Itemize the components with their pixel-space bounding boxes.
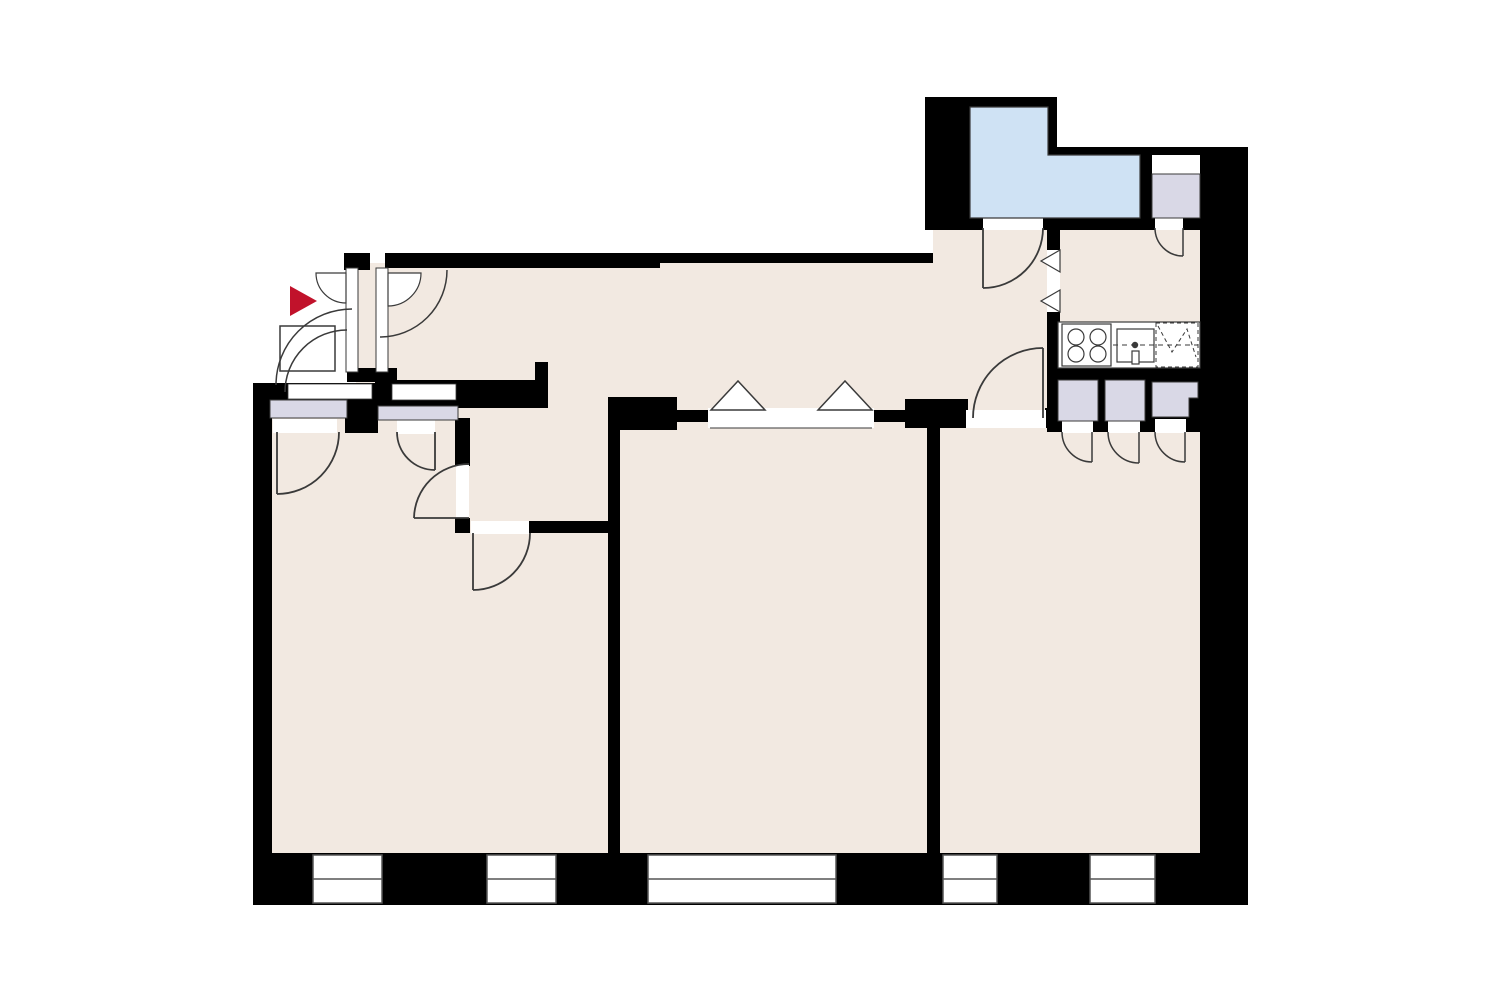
- shaft-room2-niche: [378, 406, 458, 420]
- wall-divider-r2-r3: [608, 430, 620, 853]
- opening-side-door: [456, 465, 469, 518]
- entrance-arrow: [290, 286, 317, 316]
- wall-left: [253, 383, 272, 905]
- shaft-closet-2: [1105, 380, 1145, 421]
- opening-room2-main: [471, 521, 529, 534]
- opening-room1-wall: [288, 384, 372, 399]
- wall-opening-right-thick: [905, 399, 968, 428]
- wall-opening-left-thick: [608, 397, 677, 430]
- wall-balcony-pillar: [925, 97, 970, 230]
- wall-opening-right-thin: [872, 410, 905, 422]
- room-fill-room1: [270, 383, 459, 853]
- wall-shaft-side: [1140, 155, 1152, 218]
- shaft-closet-1: [1058, 380, 1098, 421]
- floor-plan-svg: [0, 0, 1500, 1000]
- opening-room4-door: [966, 410, 1046, 428]
- wall-right: [1200, 147, 1248, 905]
- entrance-strip-right: [376, 268, 388, 372]
- opening-wide-sill: [708, 408, 874, 428]
- wall-hall-stub: [535, 362, 548, 382]
- wall-room1-jamb: [345, 398, 378, 433]
- wall-top-middle: [385, 253, 660, 268]
- wall-balcony-side: [1048, 107, 1057, 155]
- floor-plan: [0, 0, 1500, 1000]
- room-fill-room3: [618, 408, 929, 853]
- opening-room1-door: [273, 419, 337, 433]
- entrance-strip-left: [346, 268, 358, 372]
- floor-plan-page: [0, 0, 1500, 1000]
- wall-balcony-top: [970, 97, 1057, 107]
- opening-closet3: [1155, 419, 1186, 433]
- entrance-fan-left: [316, 273, 346, 303]
- wall-top-right: [660, 253, 933, 263]
- sink-faucet-stem: [1132, 351, 1139, 364]
- opening-room2-wall: [392, 384, 456, 400]
- shaft-kitchen-top: [1152, 174, 1200, 218]
- wall-opening-left-thin: [677, 410, 710, 422]
- entrance-arc-outer2: [285, 330, 347, 392]
- shaft-room1-niche: [270, 400, 347, 418]
- entrance-pier: [358, 268, 376, 375]
- wall-top-stub: [344, 253, 370, 270]
- wall-vest-bottom: [528, 521, 608, 533]
- opening-room2-door: [397, 419, 435, 434]
- wall-divider-r3-r4: [927, 428, 940, 853]
- room-fill-room4: [938, 418, 1202, 853]
- wall-vest-v1: [455, 418, 470, 466]
- wall-vest-v2: [455, 518, 470, 533]
